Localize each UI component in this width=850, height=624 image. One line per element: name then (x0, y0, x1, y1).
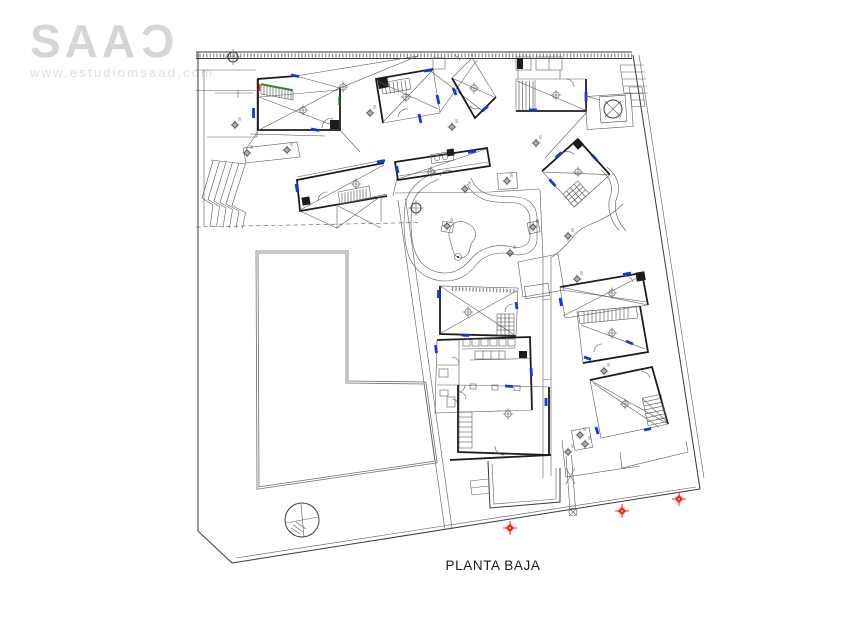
villa-unit-7 (395, 148, 490, 180)
lower-room (450, 384, 551, 460)
survey-marker-icon (503, 521, 517, 535)
drawing-caption: PLANTA BAJA (403, 558, 583, 573)
survey-marker-icon (672, 492, 686, 506)
main-house (435, 337, 532, 413)
floor-plan-svg (0, 0, 850, 624)
villa-unit-1 (250, 75, 349, 136)
survey-markers (503, 492, 686, 535)
manhole-icon (585, 87, 645, 130)
villa-unit-5 (541, 138, 610, 207)
survey-marker-icon (615, 504, 629, 518)
villa-unit-4 (516, 57, 586, 111)
page: SAAƆ www.estudiomsaad.com (0, 0, 850, 624)
plaza-terrace (257, 252, 436, 488)
benchmark-icon (225, 49, 241, 65)
tree-icon (285, 503, 319, 537)
villa-unit-2 (376, 69, 440, 123)
villa-unit-3 (452, 58, 496, 118)
projection-lines (246, 53, 600, 196)
villa-unit-10 (562, 364, 688, 477)
villa-unit-11 (439, 286, 519, 336)
villa-unit-6 (296, 160, 387, 229)
